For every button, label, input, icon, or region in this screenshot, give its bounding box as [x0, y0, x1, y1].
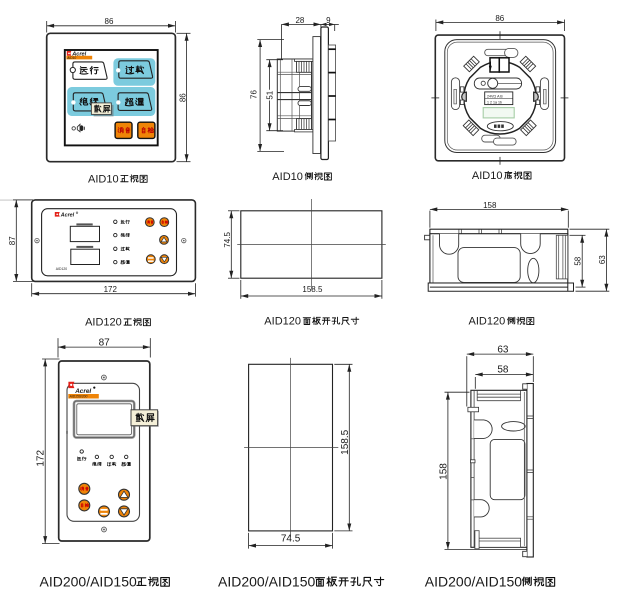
svg-text:74.5: 74.5 — [281, 534, 301, 545]
svg-text:158: 158 — [483, 201, 497, 210]
svg-text:AID120: AID120 — [469, 316, 506, 328]
svg-text:172: 172 — [104, 285, 118, 294]
svg-text:58: 58 — [574, 256, 583, 265]
svg-text:87: 87 — [99, 338, 111, 349]
svg-text:AID150/200: AID150/200 — [69, 395, 88, 399]
svg-text:76: 76 — [249, 90, 258, 99]
svg-text:158: 158 — [439, 463, 450, 480]
svg-text:172: 172 — [36, 450, 47, 467]
svg-text:AID120: AID120 — [56, 267, 67, 271]
svg-text:Acrel: Acrel — [60, 212, 75, 218]
svg-text:AID200/AID150: AID200/AID150 — [425, 573, 522, 589]
svg-text:63: 63 — [598, 255, 607, 264]
svg-text:9: 9 — [326, 16, 331, 25]
svg-text:AID10: AID10 — [88, 173, 119, 185]
svg-text:87: 87 — [8, 236, 17, 245]
svg-text:AID120: AID120 — [85, 317, 122, 329]
svg-text:158.5: 158.5 — [302, 285, 323, 294]
svg-text:158.5: 158.5 — [340, 429, 351, 454]
svg-text:AID10: AID10 — [66, 56, 76, 60]
svg-text:AID10: AID10 — [472, 170, 503, 182]
svg-text:63: 63 — [497, 344, 509, 355]
svg-text:1 2 1a 1b: 1 2 1a 1b — [487, 101, 502, 105]
svg-text:AID120: AID120 — [264, 316, 301, 328]
svg-text:86: 86 — [179, 93, 188, 102]
svg-text:28: 28 — [295, 16, 304, 25]
svg-text:AID200/AID150: AID200/AID150 — [218, 573, 315, 589]
svg-text:24VΩ A B: 24VΩ A B — [487, 94, 503, 98]
svg-text:AID10: AID10 — [272, 171, 303, 183]
svg-text:58: 58 — [497, 365, 509, 376]
svg-text:AID200/AID150: AID200/AID150 — [40, 573, 137, 589]
svg-text:86: 86 — [495, 14, 504, 23]
svg-text:86: 86 — [105, 17, 114, 26]
svg-text:74.5: 74.5 — [223, 232, 232, 248]
svg-text:51: 51 — [266, 90, 275, 99]
